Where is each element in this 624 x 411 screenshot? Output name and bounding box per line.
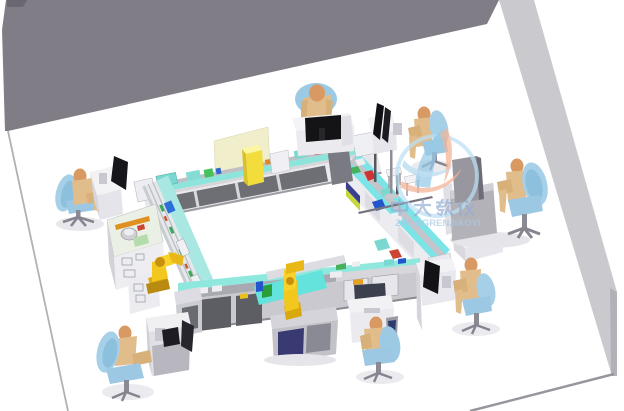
svg-text:ZHONGRENJIAOYI: ZHONGRENJIAOYI bbox=[395, 218, 481, 229]
